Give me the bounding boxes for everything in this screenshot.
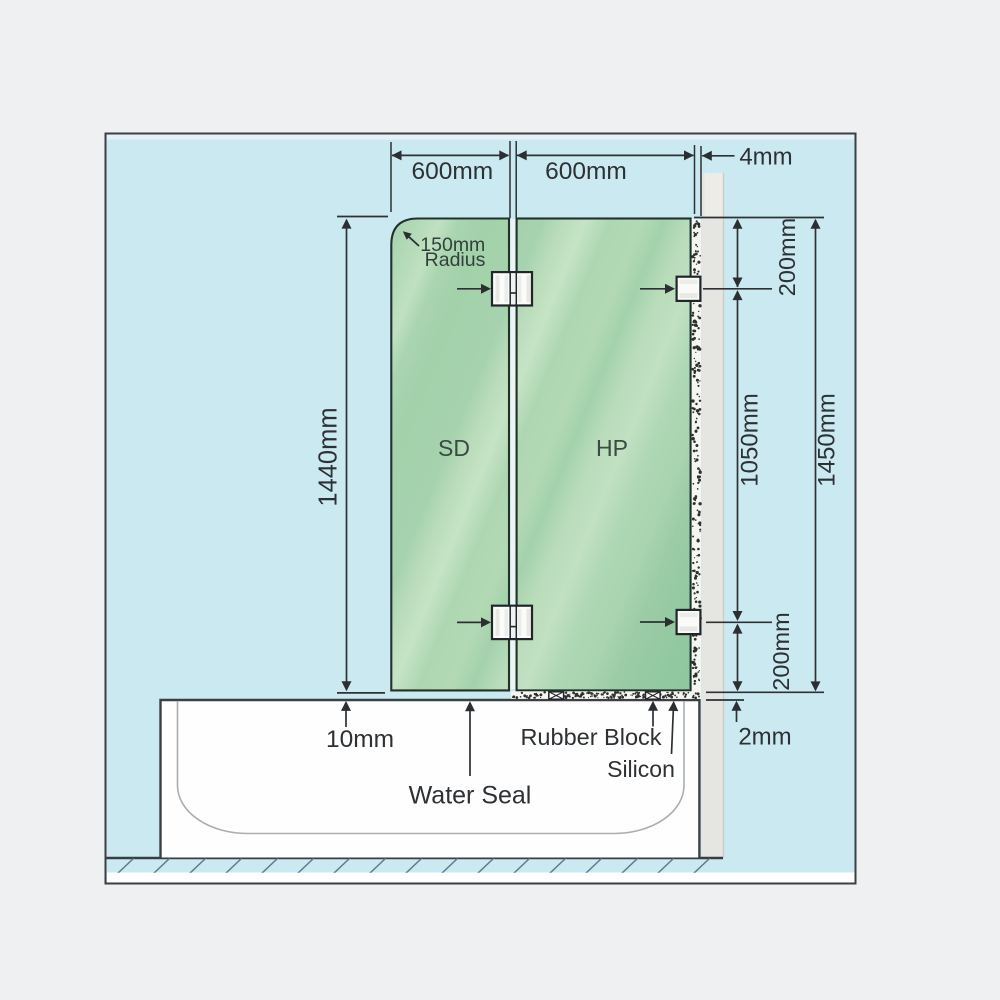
svg-text:200mm: 200mm (768, 612, 794, 690)
svg-text:200mm: 200mm (774, 218, 800, 296)
svg-text:1050mm: 1050mm (737, 393, 764, 486)
svg-text:2mm: 2mm (738, 724, 791, 751)
svg-text:Water Seal: Water Seal (409, 782, 532, 810)
svg-text:10mm: 10mm (326, 726, 394, 753)
svg-text:4mm: 4mm (739, 144, 792, 171)
svg-text:Silicon: Silicon (607, 756, 675, 782)
svg-text:HP: HP (596, 435, 628, 461)
svg-text:1440mm: 1440mm (315, 407, 343, 506)
svg-text:Rubber Block: Rubber Block (520, 724, 661, 750)
svg-text:SD: SD (438, 435, 470, 461)
svg-text:600mm: 600mm (545, 158, 627, 185)
svg-text:1450mm: 1450mm (814, 393, 841, 486)
svg-text:Radius: Radius (425, 249, 486, 271)
svg-text:600mm: 600mm (411, 158, 493, 185)
